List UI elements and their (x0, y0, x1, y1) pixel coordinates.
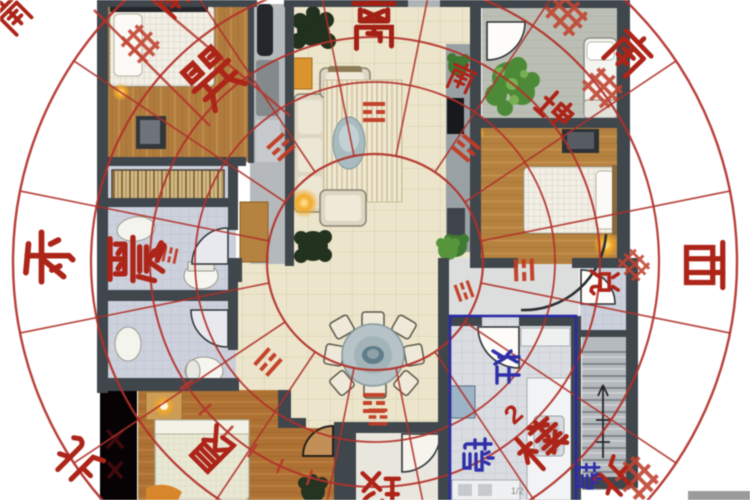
svg-text:1/2: 1/2 (511, 486, 524, 496)
